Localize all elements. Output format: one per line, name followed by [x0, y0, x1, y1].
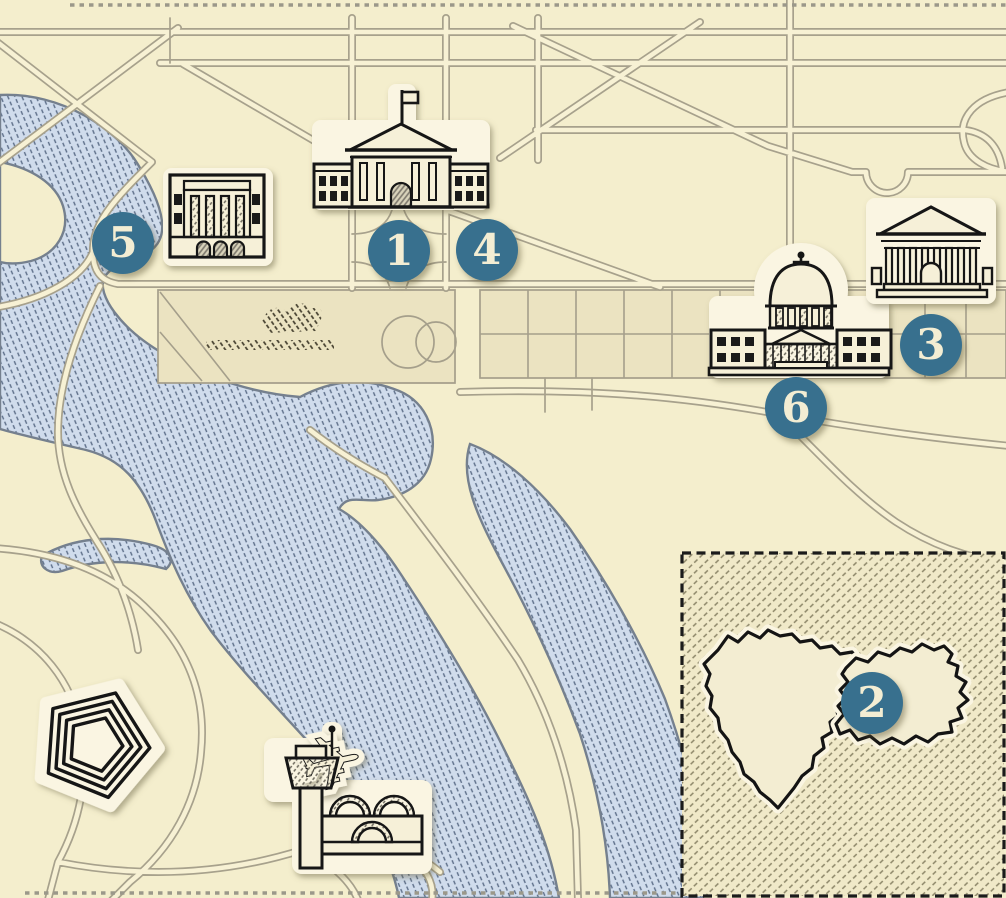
map-canvas: ✈ ✈ 1 2 3 4 5 6	[0, 0, 1006, 898]
marker-1[interactable]: 1	[368, 220, 430, 282]
marker-6[interactable]: 6	[765, 377, 827, 439]
marker-4[interactable]: 4	[456, 219, 518, 281]
marker-1-label: 1	[384, 230, 413, 272]
marker-6-label: 6	[781, 387, 810, 429]
marker-3-label: 3	[916, 324, 945, 366]
marker-3[interactable]: 3	[900, 314, 962, 376]
mall-west-lawn	[158, 290, 455, 383]
columned-hall-art	[170, 175, 264, 257]
marker-5-label: 5	[108, 222, 137, 264]
inset-map	[682, 553, 1004, 896]
base-map: ✈ ✈	[0, 0, 1006, 898]
marker-5[interactable]: 5	[92, 212, 154, 274]
marker-2[interactable]: 2	[841, 672, 903, 734]
marker-2-label: 2	[857, 682, 886, 724]
marker-4-label: 4	[472, 229, 501, 271]
